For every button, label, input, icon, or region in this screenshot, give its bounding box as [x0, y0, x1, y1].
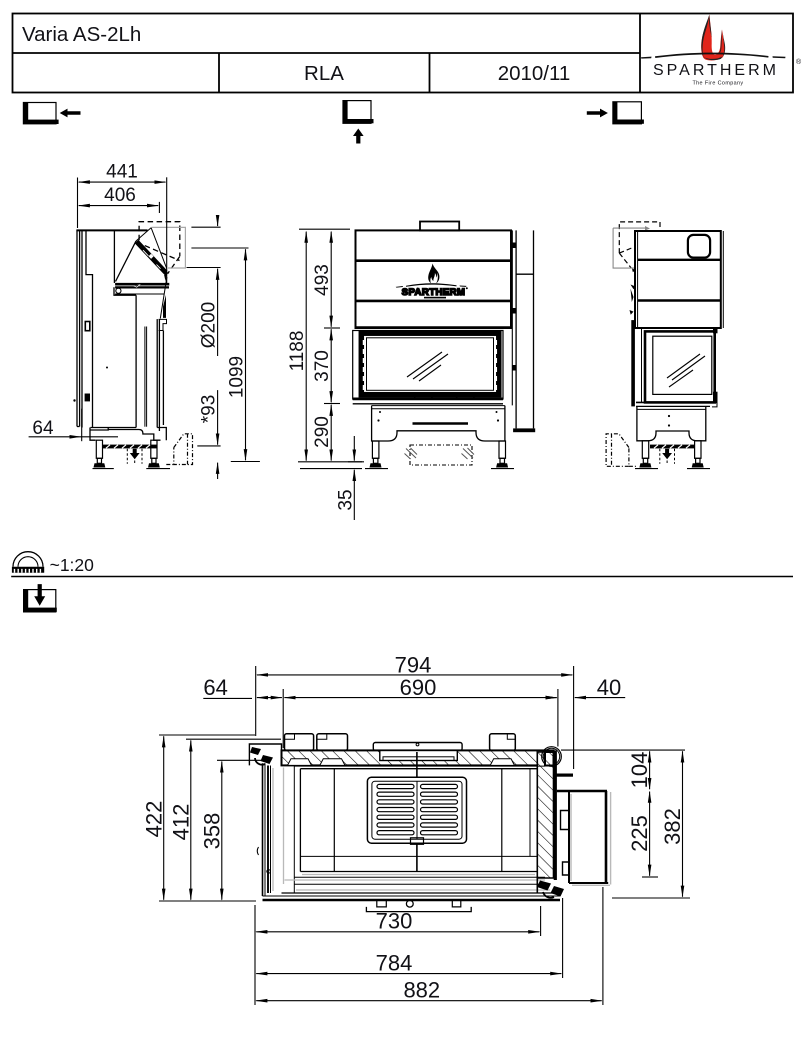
svg-text:1099: 1099 — [227, 356, 248, 398]
svg-text:690: 690 — [400, 675, 437, 700]
svg-text:~1:20: ~1:20 — [50, 555, 95, 575]
svg-text:40: 40 — [597, 675, 621, 700]
svg-text:882: 882 — [403, 978, 440, 1003]
svg-text:64: 64 — [32, 418, 54, 439]
svg-text:Varia AS-2Lh: Varia AS-2Lh — [22, 23, 141, 46]
svg-text:290: 290 — [312, 416, 333, 448]
svg-text:SPARTHERM: SPARTHERM — [653, 62, 779, 79]
svg-text:*93: *93 — [199, 395, 220, 424]
svg-text:Ø200: Ø200 — [199, 302, 220, 348]
svg-text:2010/11: 2010/11 — [498, 62, 571, 85]
svg-text:RLA: RLA — [304, 62, 344, 85]
svg-text:®: ® — [796, 58, 802, 66]
svg-text:SPARTHERM: SPARTHERM — [402, 287, 466, 298]
svg-text:35: 35 — [335, 489, 356, 510]
svg-text:1188: 1188 — [287, 331, 308, 372]
svg-text:441: 441 — [106, 162, 138, 183]
svg-text:382: 382 — [660, 808, 685, 845]
svg-text:422: 422 — [141, 801, 166, 838]
svg-text:The Fire Company: The Fire Company — [692, 81, 743, 87]
svg-text:412: 412 — [168, 804, 193, 841]
svg-text:370: 370 — [312, 350, 333, 382]
svg-text:784: 784 — [376, 951, 413, 976]
svg-text:730: 730 — [376, 909, 413, 934]
svg-text:794: 794 — [395, 652, 432, 677]
svg-text:406: 406 — [104, 185, 136, 206]
svg-text:358: 358 — [199, 813, 224, 850]
svg-text:225: 225 — [627, 815, 652, 852]
svg-text:104: 104 — [627, 752, 652, 789]
svg-text:493: 493 — [312, 264, 333, 296]
svg-text:64: 64 — [203, 675, 227, 700]
